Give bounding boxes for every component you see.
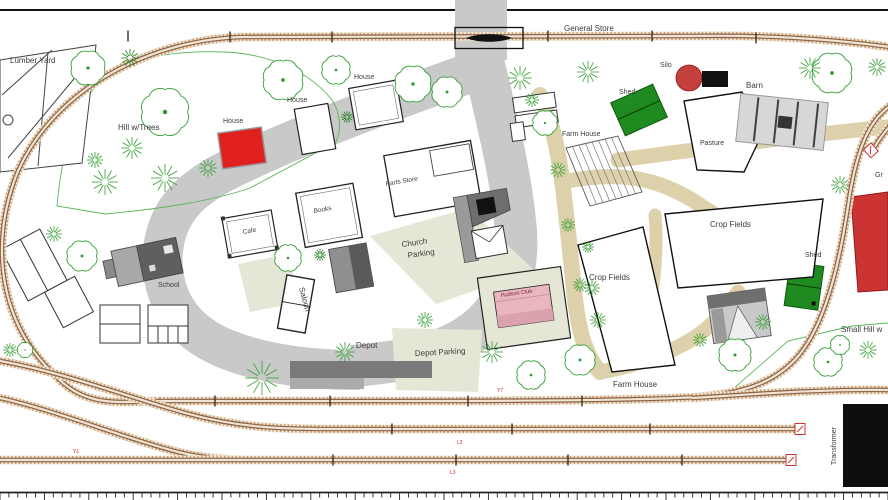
hudson-club-building[interactable] <box>477 267 570 350</box>
label-shed-right: Shed <box>805 252 821 259</box>
label-small-hill: Small Hill w <box>841 325 883 334</box>
track-marker-l3: L3 <box>450 470 456 476</box>
label-crop-fields-right: Crop Fields <box>710 220 751 229</box>
tree-burst-icon <box>417 312 433 328</box>
grain-building[interactable] <box>851 192 888 292</box>
label-school: School <box>158 282 180 289</box>
label-house-1: House <box>287 97 307 104</box>
label-farm-house-bottom: Farm House <box>613 380 658 389</box>
tree-burst-icon <box>92 169 118 195</box>
track-segment-tD[interactable] <box>0 398 283 460</box>
label-depot: Depot <box>356 341 378 350</box>
label-shed-top: Shed <box>619 89 635 96</box>
ruler <box>0 493 888 500</box>
tree-cloud-icon <box>71 51 105 85</box>
tree-burst-icon <box>46 226 62 242</box>
depot-parking-lot[interactable] <box>392 328 482 392</box>
tree-burst-icon <box>868 58 886 76</box>
tree-cloud-icon <box>67 241 97 271</box>
tree-burst-icon <box>87 152 103 168</box>
bumper-icon[interactable] <box>786 455 796 466</box>
label-house-2: House <box>354 74 374 81</box>
label-grain: Gr <box>875 172 883 179</box>
label-hill-trees: Hill w/Trees <box>118 123 159 132</box>
silo-structure[interactable] <box>676 65 728 91</box>
bumper-icon[interactable] <box>795 424 805 435</box>
books-building[interactable] <box>296 183 363 247</box>
tree-burst-icon <box>859 341 877 359</box>
red-house-building[interactable] <box>218 127 267 169</box>
label-pasture: Pasture <box>700 140 724 147</box>
track-marker-y7: Y7 <box>497 388 503 394</box>
tree-burst-icon <box>314 249 326 261</box>
gray-store-building[interactable] <box>329 243 374 293</box>
label-lumber-yard: Lumber Yard <box>10 56 56 65</box>
label-house-red: House <box>223 118 243 125</box>
label-crop-fields-left: Crop Fields <box>589 273 630 282</box>
tree-cloud-icon <box>275 245 301 271</box>
label-transformer: Transformer <box>831 426 838 465</box>
house-1-building[interactable] <box>294 103 335 154</box>
label-silo: Silo <box>660 62 672 69</box>
tree-cloud-icon <box>517 361 545 389</box>
track-marker-l2: L2 <box>457 440 463 446</box>
crop-field-right[interactable] <box>665 199 823 288</box>
tree-burst-icon <box>121 137 143 159</box>
transformer-block[interactable] <box>843 404 888 487</box>
tree-burst-icon <box>577 61 599 83</box>
farm-building[interactable] <box>707 288 771 344</box>
label-general-store: General Store <box>564 24 614 33</box>
barn-building[interactable] <box>736 94 829 151</box>
label-farm-house-top: Farm House <box>562 131 601 138</box>
track-plan-canvas[interactable]: Lumber Yard Hill w/Trees House House Hou… <box>0 0 888 500</box>
tree-cloud-icon <box>322 56 350 84</box>
tree-burst-icon <box>3 343 17 357</box>
tree-cloud-icon <box>831 336 850 355</box>
tree-cloud-icon <box>533 111 557 135</box>
track-marker-y1: Y1 <box>73 449 79 455</box>
town-buildings-south[interactable] <box>100 305 188 343</box>
label-barn: Barn <box>746 81 763 90</box>
tree-cloud-icon <box>719 339 751 371</box>
tree-cloud-icon <box>263 60 303 100</box>
tree-burst-icon <box>508 66 532 90</box>
